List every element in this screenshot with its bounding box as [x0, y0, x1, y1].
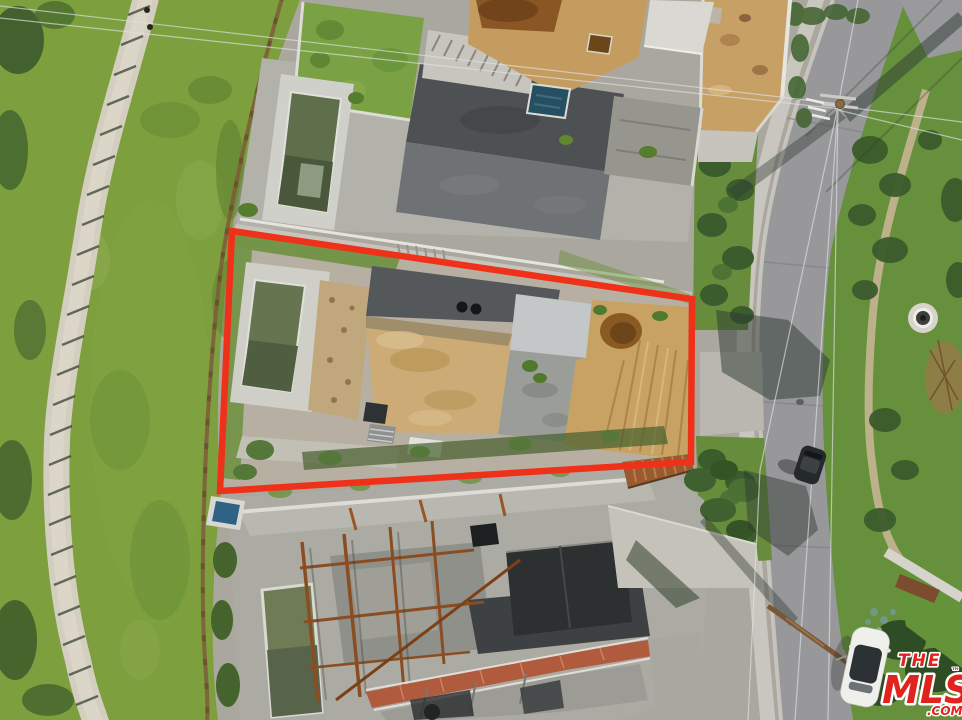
watermark-com: .COM	[927, 704, 962, 718]
pipe-opening	[424, 704, 440, 720]
manhole	[796, 399, 804, 405]
drain-hole	[471, 304, 482, 315]
square-pit	[587, 34, 612, 54]
stair-opening	[363, 402, 388, 424]
drain-hole	[457, 302, 468, 313]
construction-site-bottom	[206, 454, 762, 720]
sidewalk-segment	[698, 130, 758, 162]
retaining-walls	[604, 96, 702, 186]
aerial-photo-canvas: THE MLS ™ .COM	[0, 0, 962, 720]
aerial-photo: THE MLS ™ .COM	[0, 0, 962, 720]
covered-spa	[527, 84, 570, 118]
watermark-tm: ™	[951, 667, 960, 677]
white-slab	[510, 294, 592, 358]
